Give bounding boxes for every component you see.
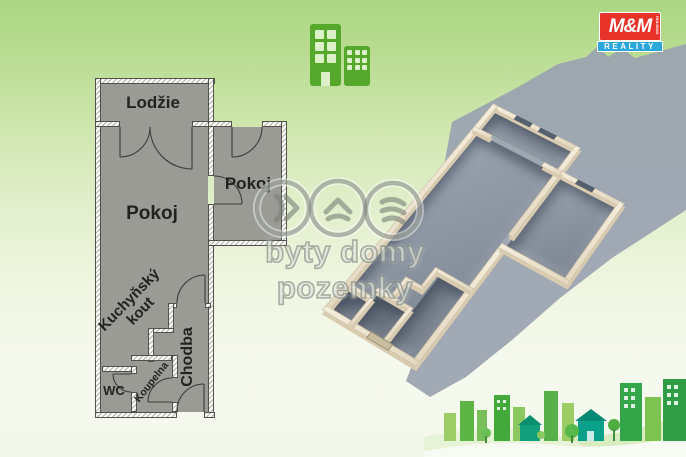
- building-windows: [347, 50, 367, 70]
- logo-reality-box: REALITY: [597, 41, 663, 52]
- domy-icon: [311, 181, 365, 235]
- watermark-text: byty domy pozemky: [208, 234, 482, 306]
- building-windows: [315, 30, 336, 63]
- building-door: [321, 72, 330, 86]
- logo-holding-text: HOLDING: [655, 16, 659, 34]
- buildings-icon: [310, 24, 372, 86]
- listing-image: Lodžie Pokoj Pokoj Kuchyňskýkout Chodba …: [0, 0, 686, 457]
- mm-reality-logo: M&M HOLDING REALITY: [597, 12, 665, 52]
- logo-top-box: M&M HOLDING: [599, 12, 661, 41]
